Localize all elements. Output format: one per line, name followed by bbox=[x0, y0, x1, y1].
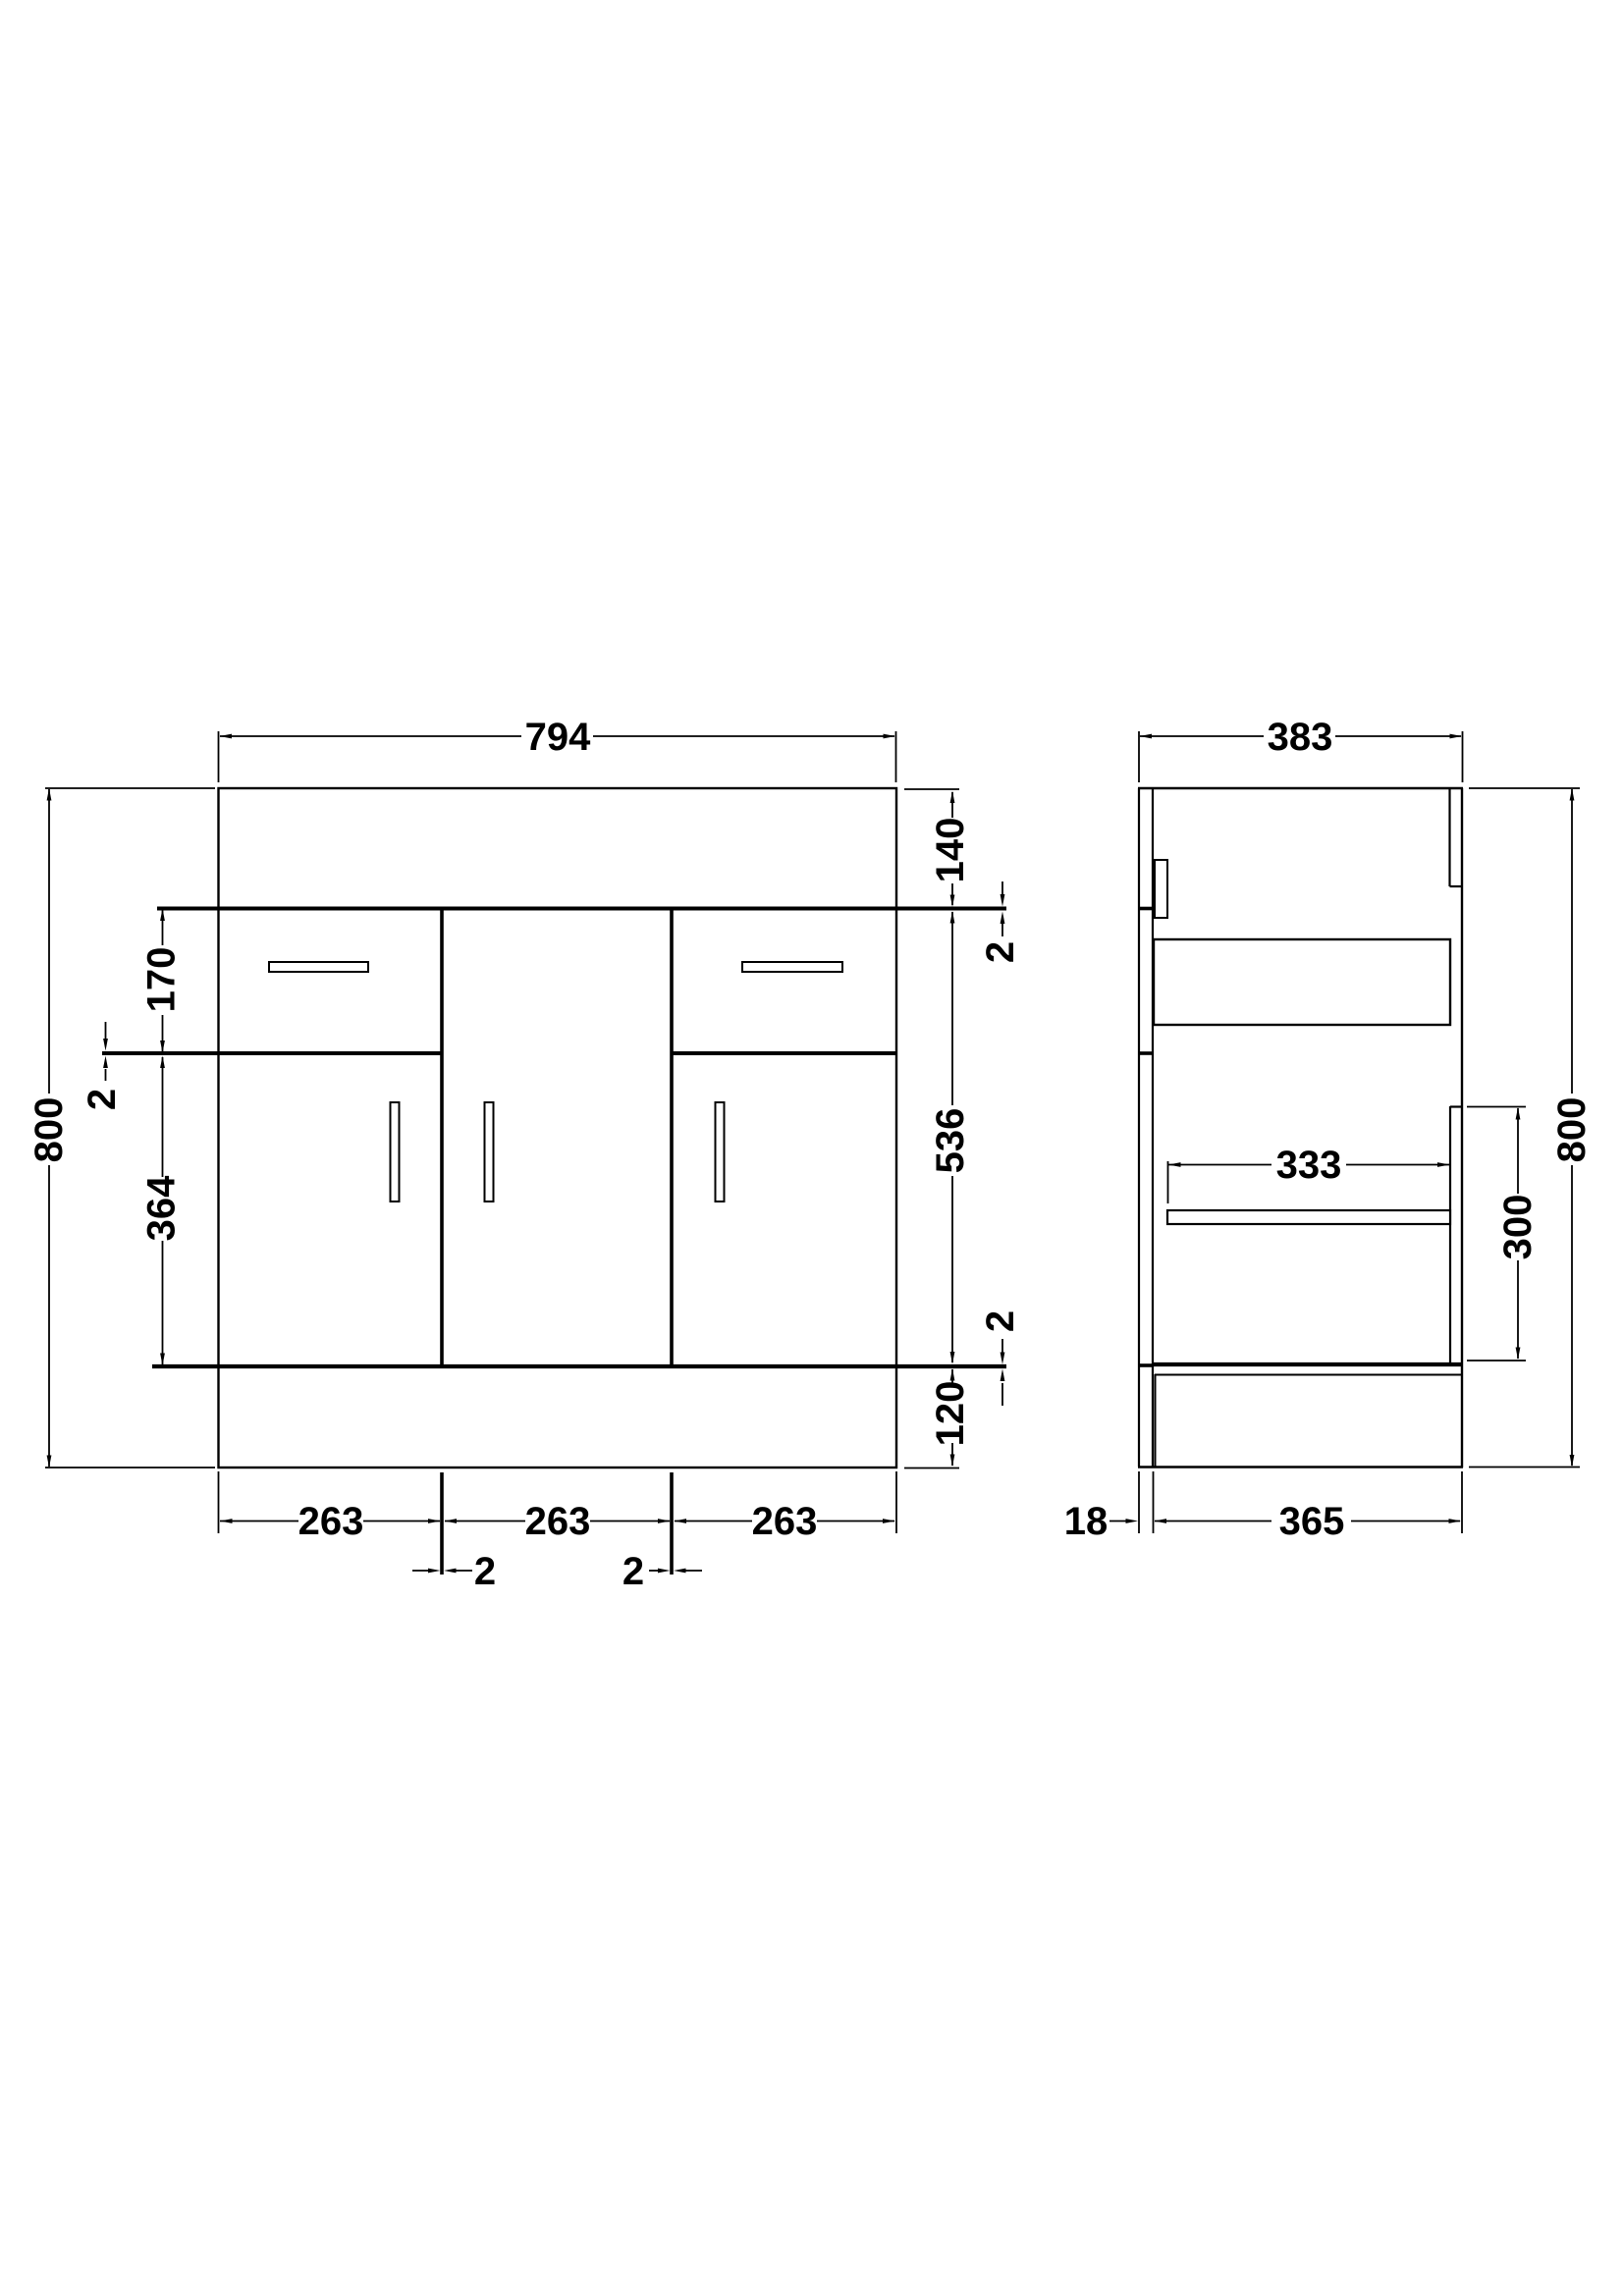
svg-text:800: 800 bbox=[27, 1097, 71, 1163]
svg-text:364: 364 bbox=[140, 1175, 184, 1241]
svg-text:120: 120 bbox=[929, 1381, 972, 1447]
svg-text:2: 2 bbox=[979, 941, 1022, 963]
svg-text:300: 300 bbox=[1496, 1195, 1540, 1260]
svg-text:263: 263 bbox=[525, 1500, 591, 1543]
svg-text:2: 2 bbox=[81, 1089, 124, 1110]
svg-text:383: 383 bbox=[1268, 716, 1333, 759]
svg-text:18: 18 bbox=[1064, 1500, 1109, 1543]
svg-text:2: 2 bbox=[622, 1550, 644, 1593]
svg-text:263: 263 bbox=[752, 1500, 818, 1543]
svg-text:170: 170 bbox=[140, 947, 184, 1013]
svg-text:140: 140 bbox=[929, 818, 972, 883]
svg-text:794: 794 bbox=[525, 716, 591, 759]
svg-text:800: 800 bbox=[1550, 1097, 1594, 1163]
svg-text:2: 2 bbox=[474, 1550, 496, 1593]
svg-text:263: 263 bbox=[298, 1500, 364, 1543]
svg-text:333: 333 bbox=[1276, 1144, 1342, 1187]
svg-text:365: 365 bbox=[1279, 1500, 1345, 1543]
svg-text:2: 2 bbox=[979, 1310, 1022, 1332]
svg-text:536: 536 bbox=[929, 1108, 972, 1174]
